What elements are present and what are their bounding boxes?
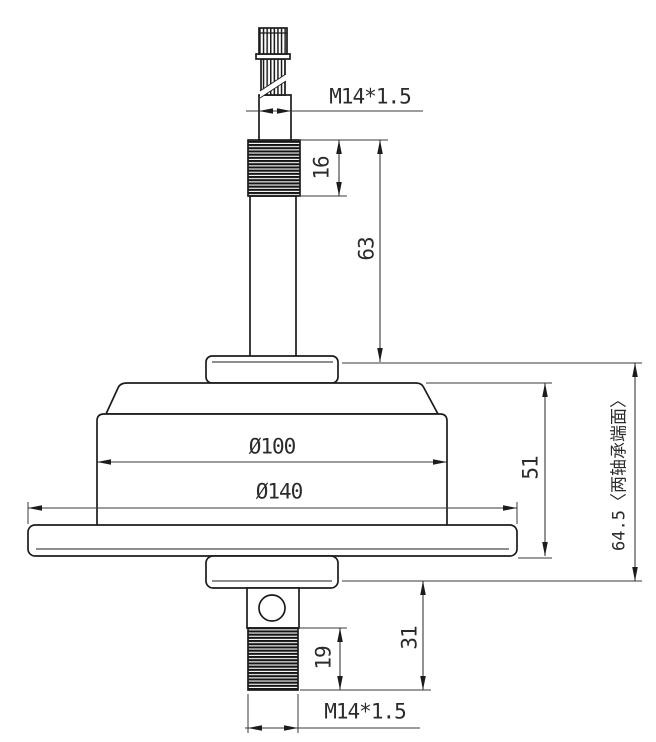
main-body xyxy=(97,414,447,526)
cross-hole xyxy=(259,595,285,621)
dim-text-body-diameter: Ø100 xyxy=(249,437,296,458)
bottom-thread xyxy=(248,628,298,690)
dim-text-bottom-thread-length: 19 xyxy=(314,646,335,669)
tapered-cap xyxy=(106,383,438,414)
drawing-canvas xyxy=(0,0,656,742)
lower-bearing-boss xyxy=(206,556,338,588)
upper-bearing-boss xyxy=(206,356,338,383)
top-thread xyxy=(248,140,300,196)
dim-text-bottom-thread-callout: M14*1.5 xyxy=(324,702,406,723)
dim-text-housing-height: 51 xyxy=(521,456,542,479)
drawing-sheet: M14*1.5 16 63 Ø100 Ø140 51 64.5〈两轴承端面〉 3… xyxy=(0,0,656,742)
top-plain-shaft xyxy=(259,95,291,140)
dim-text-bottom-shaft-length: 31 xyxy=(400,626,421,649)
spline-upper xyxy=(259,28,287,54)
dim-text-top-thread-callout: M14*1.5 xyxy=(329,87,411,108)
dim-text-top-shaft-length: 63 xyxy=(357,237,378,260)
dim-text-top-thread-length: 16 xyxy=(312,156,333,179)
part-outline xyxy=(28,28,517,690)
upper-shaft xyxy=(250,196,296,358)
flange xyxy=(28,525,517,556)
dim-text-bearing-face-span: 64.5〈两轴承端面〉 xyxy=(612,391,629,551)
dim-text-flange-diameter: Ø140 xyxy=(256,482,303,503)
